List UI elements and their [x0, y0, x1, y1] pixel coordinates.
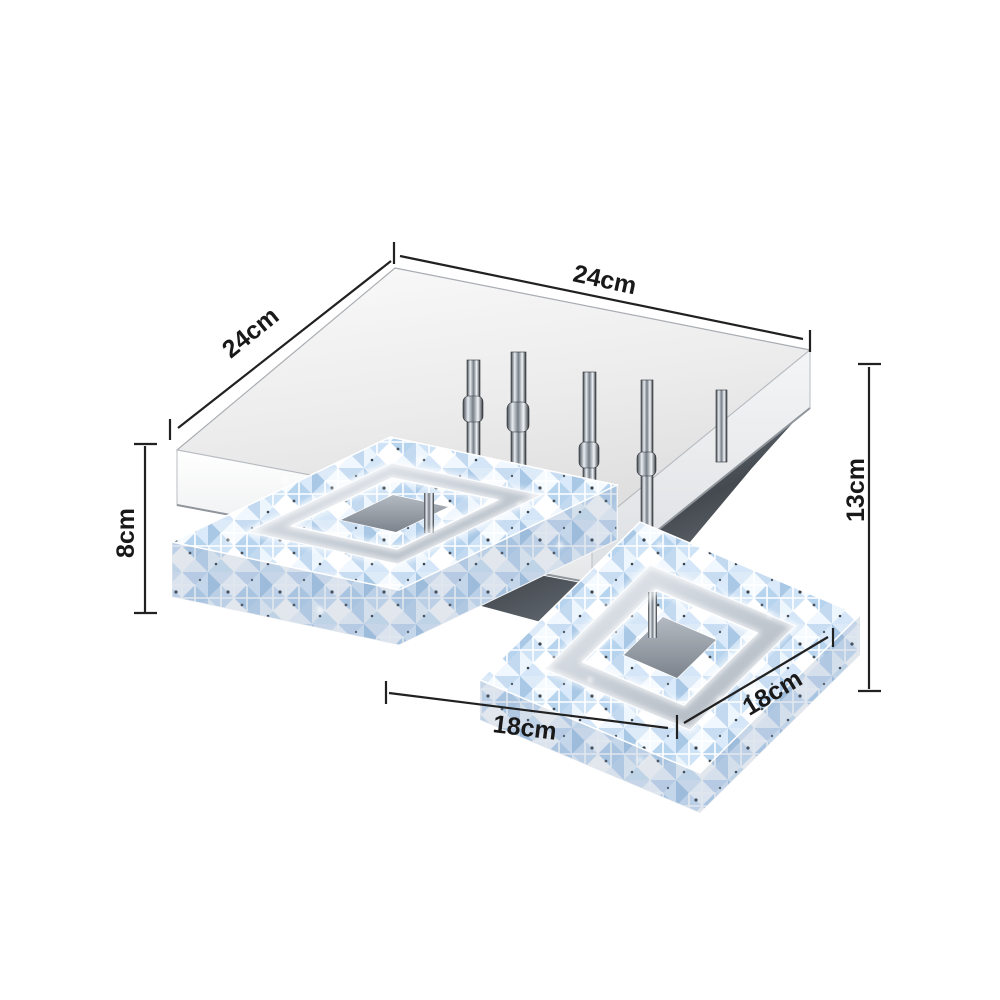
dim-body-height: 8cm — [112, 444, 157, 613]
ring-left-center-rod — [424, 493, 434, 533]
dim-label-base-depth: 24cm — [217, 302, 284, 364]
dim-label-total-height: 13cm — [842, 458, 870, 522]
dim-label-body-height: 8cm — [112, 508, 140, 558]
product-dimension-diagram: 24cm 24cm 13cm 8cm 18cm — [0, 0, 1000, 1000]
